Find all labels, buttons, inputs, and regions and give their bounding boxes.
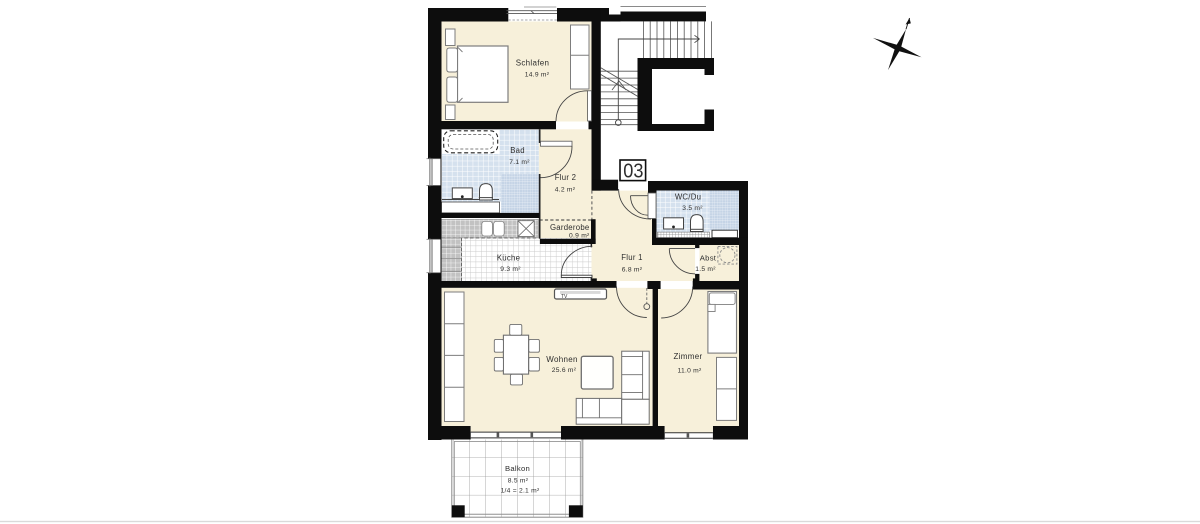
svg-text:0.9 m²: 0.9 m²: [569, 232, 590, 239]
svg-text:11.0 m²: 11.0 m²: [678, 368, 702, 375]
svg-text:4.2 m²: 4.2 m²: [555, 187, 576, 194]
svg-text:7.1 m²: 7.1 m²: [509, 159, 530, 166]
svg-text:Garderobe: Garderobe: [550, 223, 590, 232]
svg-text:Balkon: Balkon: [505, 464, 530, 473]
svg-text:25.6 m²: 25.6 m²: [552, 367, 577, 374]
svg-text:Wohnen: Wohnen: [546, 355, 577, 364]
svg-text:Abst: Abst: [700, 253, 717, 262]
svg-text:8.5 m²: 8.5 m²: [508, 478, 529, 485]
svg-text:1/4 = 2.1 m²: 1/4 = 2.1 m²: [501, 488, 540, 495]
svg-text:6.8 m²: 6.8 m²: [622, 266, 643, 273]
svg-text:3.5 m²: 3.5 m²: [682, 205, 703, 212]
svg-text:03: 03: [623, 161, 643, 183]
svg-text:Zimmer: Zimmer: [674, 352, 703, 361]
svg-text:Flur 1: Flur 1: [621, 253, 642, 262]
svg-text:1.5 m²: 1.5 m²: [695, 266, 716, 273]
svg-text:9.3 m²: 9.3 m²: [500, 266, 521, 273]
svg-text:Flur 2: Flur 2: [555, 173, 576, 182]
svg-text:Küche: Küche: [497, 254, 520, 263]
svg-text:TV: TV: [561, 294, 568, 300]
svg-text:Bad: Bad: [510, 146, 525, 155]
svg-text:14.9 m²: 14.9 m²: [525, 72, 550, 79]
svg-text:WC/Du: WC/Du: [675, 192, 701, 201]
svg-text:Schlafen: Schlafen: [516, 59, 550, 68]
